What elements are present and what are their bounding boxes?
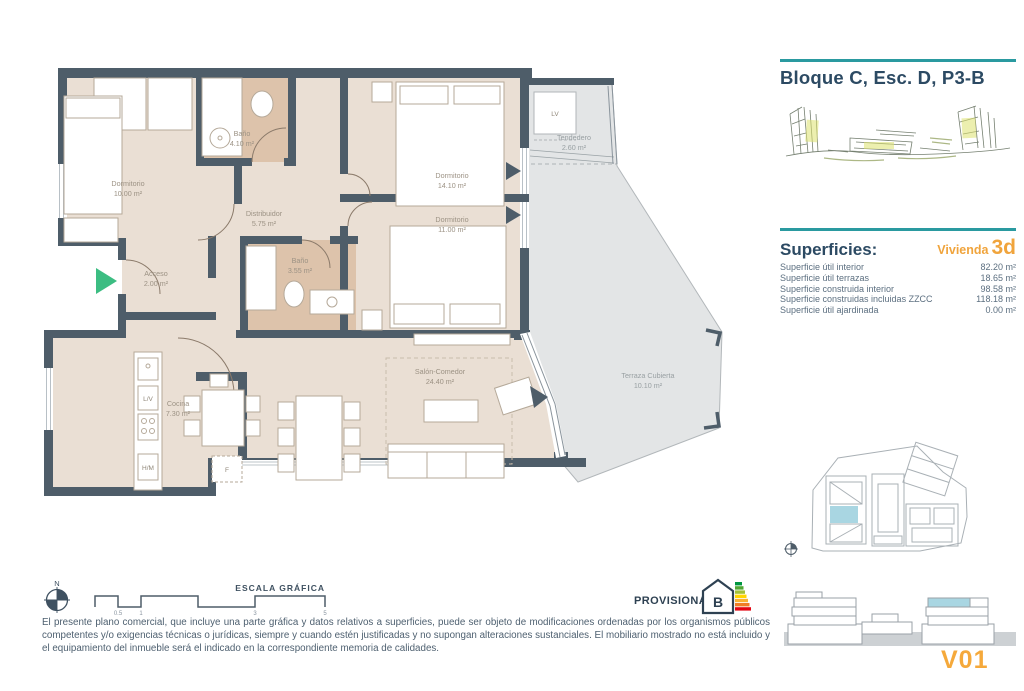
- scale-label: ESCALA GRÁFICA: [235, 583, 325, 593]
- svg-text:11.00 m²: 11.00 m²: [438, 225, 466, 234]
- table-row: Superficie útil interior82.20 m²: [780, 262, 1016, 273]
- vivienda-tag: Vivienda3d: [937, 236, 1016, 260]
- north-compass-icon: N: [44, 579, 70, 613]
- table-row: Superficie útil ajardinada0.00 m²: [780, 305, 1016, 316]
- superficies-header: Superficies: Vivienda3d: [780, 236, 1016, 260]
- svg-text:7.30 m²: 7.30 m²: [166, 409, 191, 418]
- vivienda-value: 3d: [991, 236, 1016, 259]
- svg-text:14.10 m²: 14.10 m²: [438, 181, 467, 190]
- svg-text:10.10 m²: 10.10 m²: [634, 381, 663, 390]
- svg-text:2.60 m²: 2.60 m²: [562, 143, 587, 152]
- svg-text:5.75 m²: 5.75 m²: [252, 219, 277, 228]
- room-acceso: Acceso2.00 m²: [144, 269, 169, 288]
- page-title: Bloque C, Esc. D, P3-B: [780, 67, 985, 89]
- fridge-label: F: [225, 467, 229, 474]
- svg-text:4.10 m²: 4.10 m²: [230, 139, 255, 148]
- site-key-plan: [780, 438, 1020, 570]
- room-dormitorio-1: Dormitorio10.00 m²: [111, 179, 144, 198]
- scale-bar: ESCALA GRÁFICA 0.5 1 3 5: [95, 583, 327, 617]
- plan-sheet: Dormitorio10.00 m² Baño4.10 m² Dormitori…: [0, 0, 1024, 691]
- oven-label: H/M: [142, 465, 154, 472]
- version-badge: V01: [941, 646, 988, 675]
- superficies-table: Superficie útil interior82.20 m² Superfi…: [780, 262, 1016, 316]
- room-dormitorio-3: Dormitorio11.00 m²: [435, 215, 468, 234]
- svg-text:3.55 m²: 3.55 m²: [288, 266, 313, 275]
- svg-text:Baño: Baño: [292, 256, 309, 265]
- highlighted-unit: [830, 506, 858, 523]
- table-row: Superficie construida interior98.58 m²: [780, 284, 1016, 295]
- svg-text:Baño: Baño: [234, 129, 251, 138]
- svg-text:Salón-Comedor: Salón-Comedor: [415, 367, 466, 376]
- dishwasher-label: L/V: [143, 396, 153, 403]
- svg-text:10.00 m²: 10.00 m²: [114, 189, 143, 198]
- svg-text:Cocina: Cocina: [167, 399, 189, 408]
- divider: [780, 228, 1016, 231]
- svg-text:Distribuidor: Distribuidor: [246, 209, 283, 218]
- entry-arrow-icon: [96, 268, 117, 294]
- table-row: Superficie construidas incluidas ZZCC118…: [780, 294, 1016, 305]
- washer-label: LV: [551, 111, 559, 118]
- room-cocina: Cocina7.30 m²: [166, 399, 191, 418]
- svg-text:Acceso: Acceso: [144, 269, 168, 278]
- svg-text:2.00 m²: 2.00 m²: [144, 279, 169, 288]
- vivienda-label: Vivienda: [937, 243, 988, 257]
- svg-text:N: N: [54, 579, 59, 588]
- floor-plan: Dormitorio10.00 m² Baño4.10 m² Dormitori…: [30, 40, 760, 570]
- room-tendedero: Tendedero2.60 m²: [557, 133, 591, 152]
- key-compass-icon: [784, 541, 798, 557]
- superficies-heading: Superficies:: [780, 240, 877, 260]
- svg-text:Dormitorio: Dormitorio: [435, 215, 468, 224]
- energy-bars: [735, 582, 751, 611]
- project-sketch: [780, 92, 1016, 186]
- svg-text:Dormitorio: Dormitorio: [111, 179, 144, 188]
- energy-rating-icon: B: [698, 576, 754, 618]
- highlighted-floor: [928, 598, 970, 607]
- svg-text:24.40 m²: 24.40 m²: [426, 377, 455, 386]
- table-row: Superficie útil terrazas18.65 m²: [780, 273, 1016, 284]
- energy-letter: B: [713, 594, 723, 610]
- legal-disclaimer: El presente plano comercial, que incluye…: [42, 616, 770, 655]
- svg-text:Dormitorio: Dormitorio: [435, 171, 468, 180]
- scale-and-north: N ESCALA GRÁFICA 0.5 1 3 5: [40, 578, 340, 620]
- divider: [780, 59, 1016, 62]
- svg-text:Tendedero: Tendedero: [557, 133, 591, 142]
- room-dormitorio-2: Dormitorio14.10 m²: [435, 171, 468, 190]
- svg-text:Terraza Cubierta: Terraza Cubierta: [621, 371, 674, 380]
